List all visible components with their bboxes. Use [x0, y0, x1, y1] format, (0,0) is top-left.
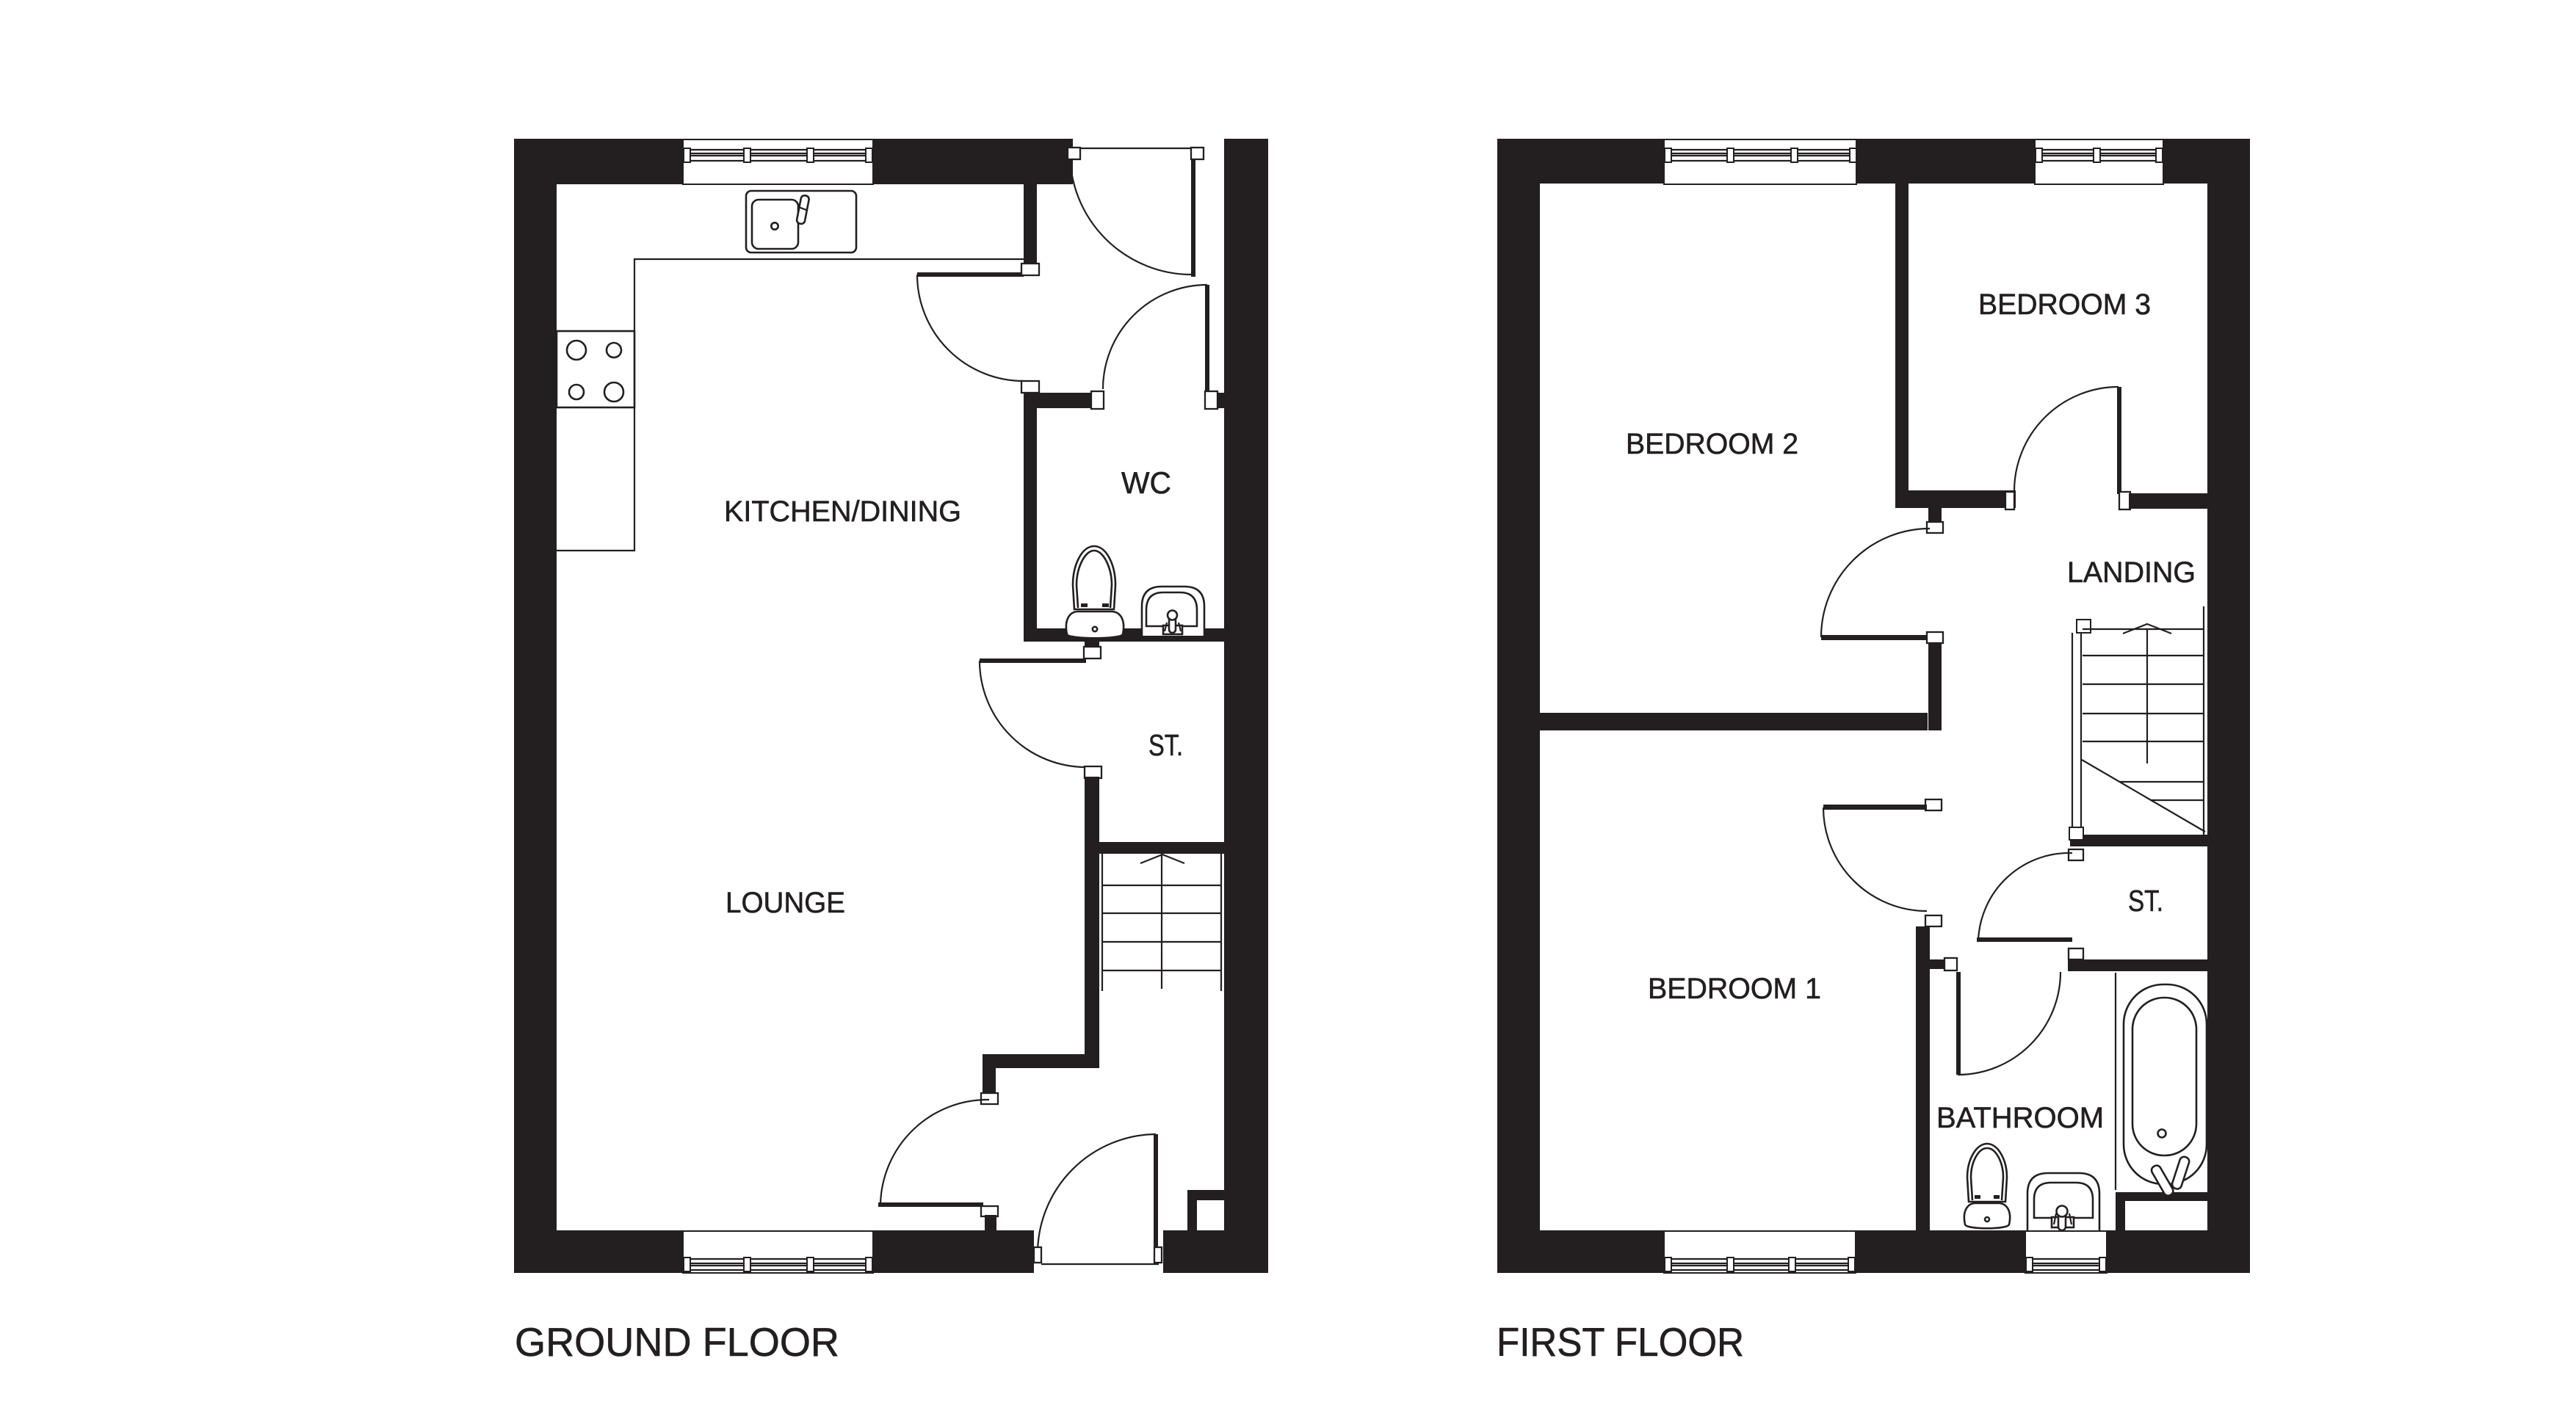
svg-text:GROUND FLOOR: GROUND FLOOR — [515, 1319, 839, 1365]
svg-text:BEDROOM 1: BEDROOM 1 — [1648, 973, 1821, 1005]
svg-text:BEDROOM 2: BEDROOM 2 — [1626, 428, 1798, 460]
svg-text:FIRST FLOOR: FIRST FLOOR — [1497, 1319, 1744, 1365]
svg-text:ST.: ST. — [1148, 728, 1183, 762]
svg-text:WC: WC — [1121, 465, 1171, 500]
svg-text:ST.: ST. — [2128, 884, 2163, 918]
svg-text:LOUNGE: LOUNGE — [726, 887, 845, 919]
svg-text:BEDROOM 3: BEDROOM 3 — [1978, 289, 2151, 321]
svg-text:LANDING: LANDING — [2067, 556, 2196, 589]
svg-text:BATHROOM: BATHROOM — [1936, 1102, 2104, 1134]
svg-text:KITCHEN/DINING: KITCHEN/DINING — [724, 496, 961, 528]
